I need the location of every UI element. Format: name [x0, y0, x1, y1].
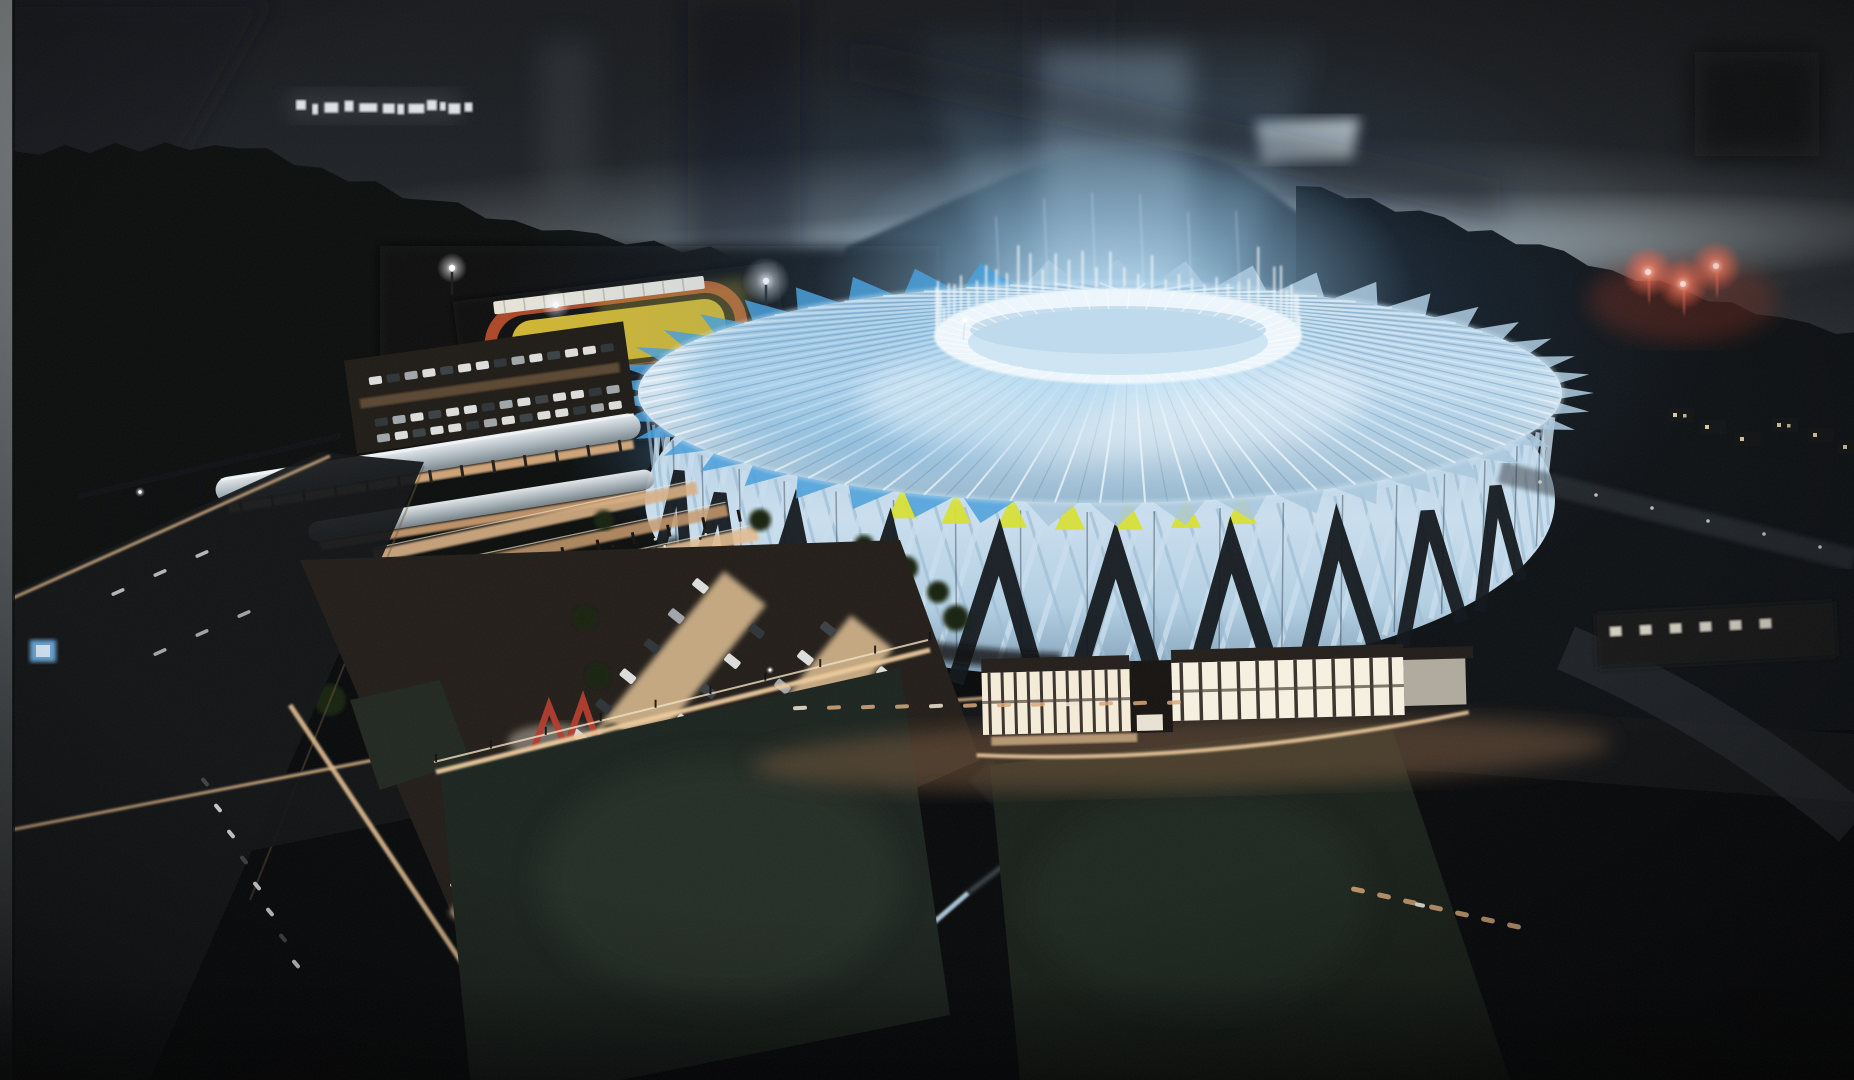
- night-arena-scene: [0, 0, 1854, 1080]
- film-grain: [0, 0, 1854, 1080]
- photo-of-arena-rendering: [0, 0, 1854, 1080]
